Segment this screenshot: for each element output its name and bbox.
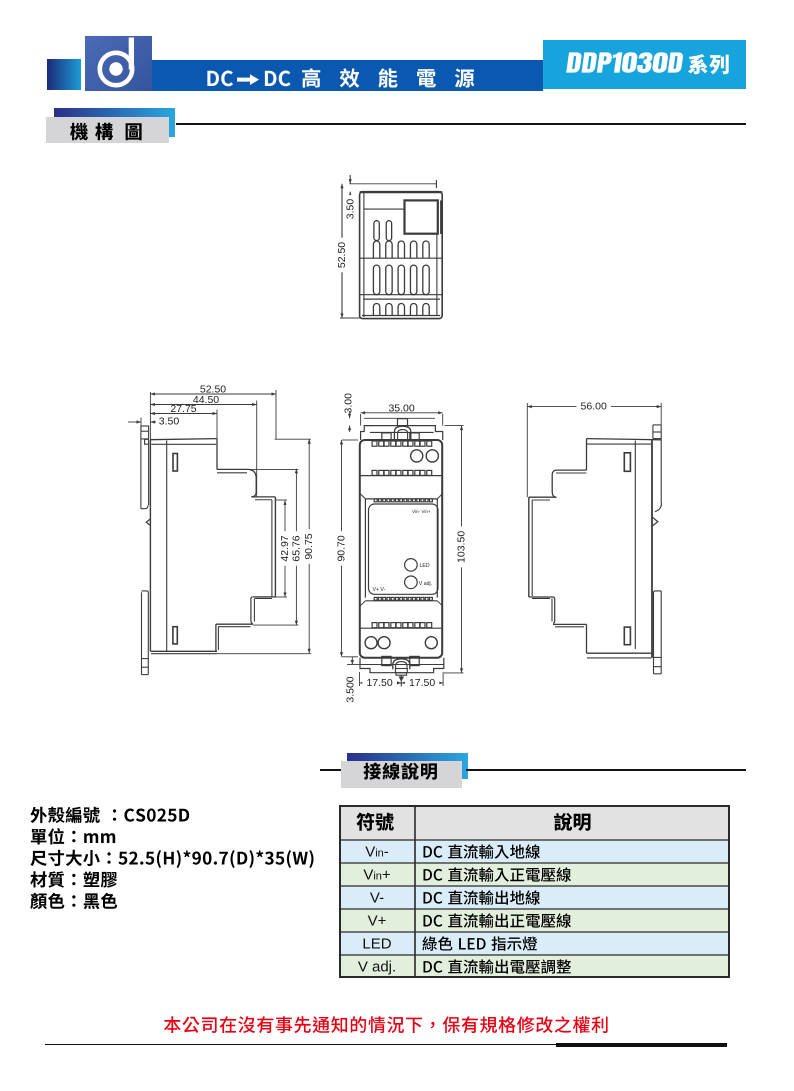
svg-text:3.50: 3.50 [159,416,180,428]
svg-text:44.50: 44.50 [193,394,219,406]
svg-text:3.500: 3.500 [344,676,356,702]
svg-text:52.50: 52.50 [336,242,348,268]
svg-text:90.75: 90.75 [303,533,315,559]
svg-text:V+: V+ [368,913,387,930]
svg-text:35.00: 35.00 [388,403,414,415]
svg-text:V adj.: V adj. [358,959,396,976]
svg-text:LED: LED [420,563,430,569]
svg-text:Vin- Vin+: Vin- Vin+ [412,509,431,514]
svg-text:V-: V- [370,890,384,907]
svg-text:65.76: 65.76 [290,535,302,561]
svg-text:LED: LED [362,936,391,953]
svg-text:27.75: 27.75 [170,403,196,415]
svg-text:V adj.: V adj. [419,581,432,587]
svg-text:103.50: 103.50 [456,531,468,563]
svg-text:17.50: 17.50 [366,677,392,689]
svg-text:17.50: 17.50 [409,677,435,689]
svg-text:3.50: 3.50 [345,199,357,220]
svg-text:56.00: 56.00 [581,401,607,413]
svg-text:3.00: 3.00 [343,393,355,414]
svg-text:90.70: 90.70 [336,535,348,561]
svg-text:V+ V-: V+ V- [373,587,386,593]
svg-text:42.97: 42.97 [279,535,291,561]
